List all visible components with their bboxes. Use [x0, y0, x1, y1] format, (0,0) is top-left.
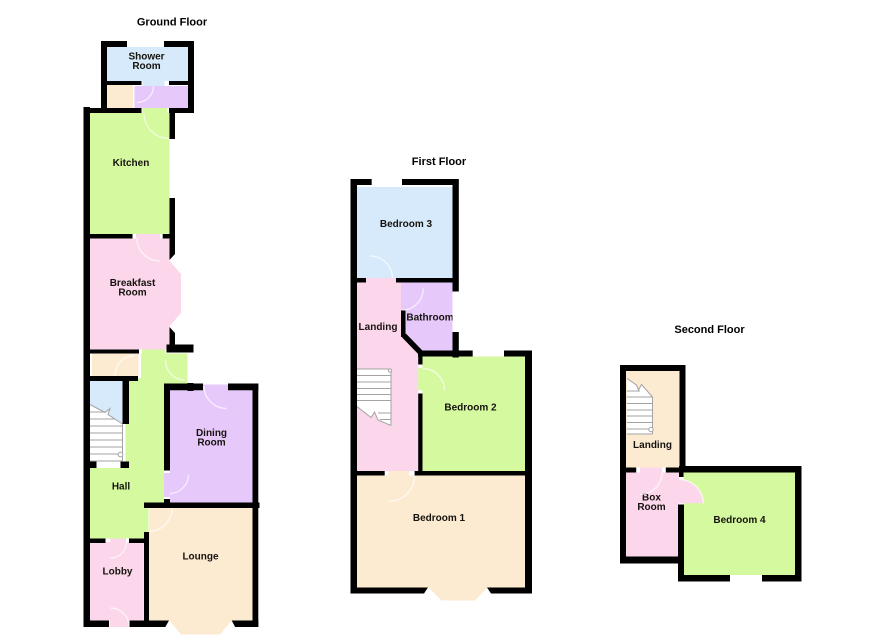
- svg-text:Bedroom 2: Bedroom 2: [444, 403, 497, 414]
- svg-text:Room: Room: [637, 502, 665, 513]
- svg-text:Second Floor: Second Floor: [674, 324, 745, 336]
- svg-text:Bedroom 3: Bedroom 3: [380, 219, 433, 230]
- svg-text:Hall: Hall: [112, 482, 131, 493]
- svg-text:Lobby: Lobby: [103, 567, 133, 578]
- svg-text:Room: Room: [132, 61, 160, 72]
- svg-text:Bathroom: Bathroom: [406, 313, 453, 324]
- svg-text:Bedroom 1: Bedroom 1: [413, 513, 466, 524]
- svg-text:Landing: Landing: [633, 440, 672, 451]
- svg-text:Kitchen: Kitchen: [113, 158, 150, 169]
- svg-text:Lounge: Lounge: [182, 552, 219, 563]
- svg-text:Room: Room: [197, 438, 225, 449]
- svg-text:Ground Floor: Ground Floor: [137, 17, 208, 29]
- svg-text:Landing: Landing: [359, 322, 398, 333]
- svg-text:Bedroom 4: Bedroom 4: [713, 515, 766, 526]
- svg-text:Room: Room: [118, 287, 146, 298]
- svg-text:First Floor: First Floor: [412, 156, 467, 168]
